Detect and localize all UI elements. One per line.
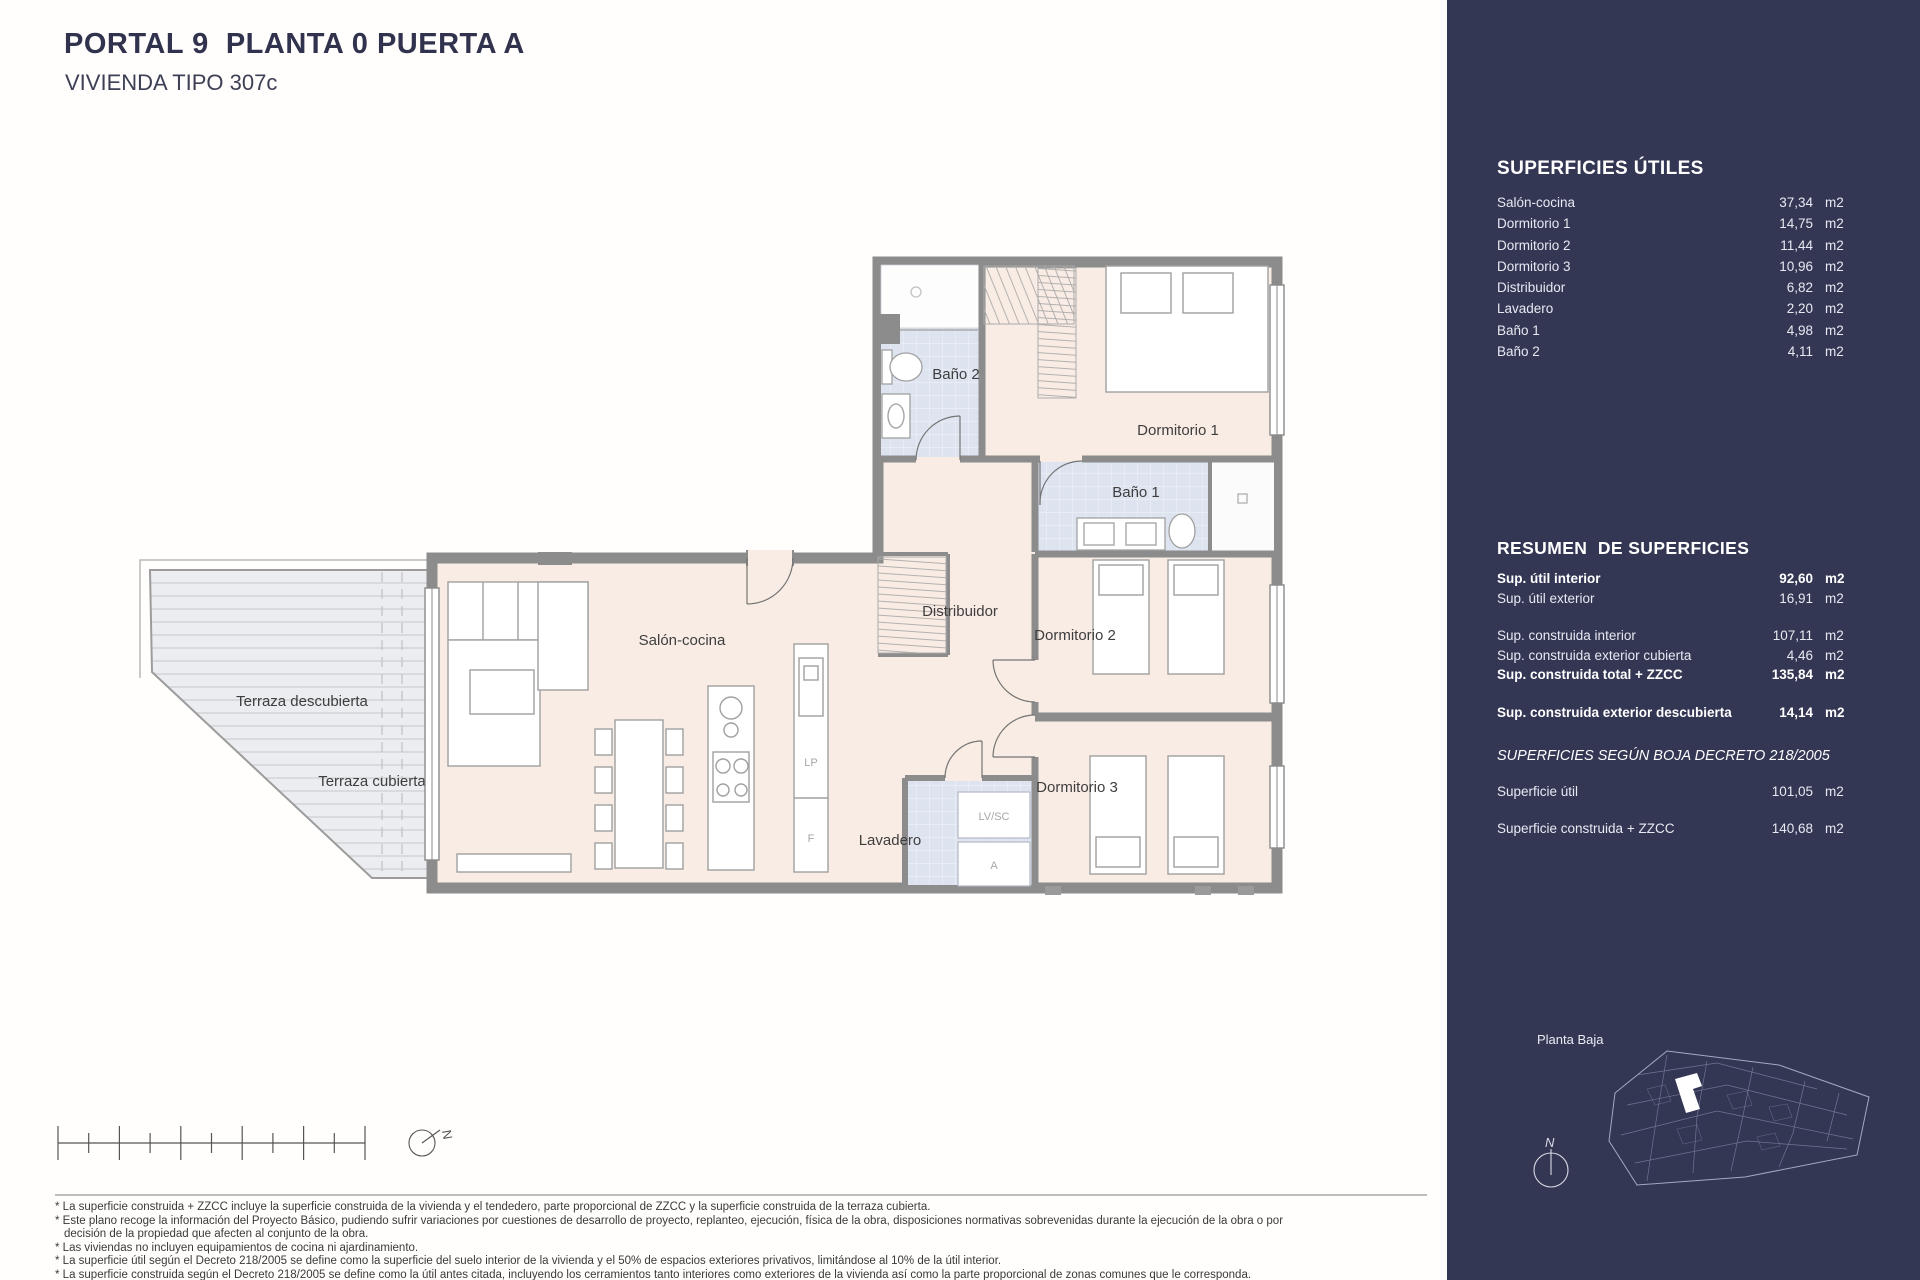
footnote: * Las viviendas no incluyen equipamiento… <box>55 1242 1310 1256</box>
banyo2-label: Baño 2 <box>932 366 980 383</box>
resumen-row: Sup. útil interior92,60m2 <box>1497 571 1859 591</box>
plan-sheet: PORTAL 9 PLANTA 0 PUERTA A VIVIENDA TIPO… <box>0 0 1920 1280</box>
a-label: A <box>990 860 998 872</box>
utiles-row: Lavadero2,20m2 <box>1497 301 1859 322</box>
utiles-row: Dormitorio 114,75m2 <box>1497 216 1859 237</box>
boja-heading: SUPERFICIES SEGÚN BOJA DECRETO 218/2005 <box>1497 748 1859 764</box>
utiles-row: Distribuidor6,82m2 <box>1497 280 1859 301</box>
dormitorio2-label: Dormitorio 2 <box>1034 627 1116 644</box>
page-subtitle: VIVIENDA TIPO 307c <box>65 70 277 96</box>
sidebar: SUPERFICIES ÚTILES Salón-cocina37,34m2 D… <box>1447 0 1920 1280</box>
resumen-section: RESUMEN DE SUPERFICIES Sup. útil interio… <box>1497 538 1859 725</box>
banyo1-label: Baño 1 <box>1112 484 1160 501</box>
dining-table <box>615 720 663 868</box>
wall-tab <box>1195 886 1211 895</box>
distribuidor-label: Distribuidor <box>922 603 998 620</box>
dormitorio1-label: Dormitorio 1 <box>1137 422 1219 439</box>
coffee-table <box>470 670 534 714</box>
site-outline <box>1609 1051 1869 1185</box>
utiles-row: Baño 14,98m2 <box>1497 323 1859 344</box>
utiles-row: Salón-cocina37,34m2 <box>1497 195 1859 216</box>
footnote: * La superficie útil según el Decreto 21… <box>55 1255 1310 1269</box>
footnote: * Este plano recoge la información del P… <box>55 1215 1310 1242</box>
sideboard <box>457 854 571 872</box>
terraza-descubierta-label: Terraza descubierta <box>236 693 368 710</box>
kitchen-island <box>708 686 754 870</box>
site-minimap: N <box>1517 1045 1887 1210</box>
lavadero-label: Lavadero <box>859 832 922 849</box>
boja-row: Superficie construida + ZZCC140,68m2 <box>1497 821 1859 858</box>
scale-bar: N <box>50 1118 460 1170</box>
dorm1-furniture <box>1106 266 1268 392</box>
resumen-row: Sup. útil exterior16,91m2 <box>1497 591 1859 611</box>
wall-pillar-2 <box>538 552 572 565</box>
dormitorio3-label: Dormitorio 3 <box>1036 779 1118 796</box>
lvsc-label: LV/SC <box>979 811 1010 823</box>
terraza-cubierta-label: Terraza cubierta <box>318 773 426 790</box>
f-label: F <box>808 833 815 845</box>
highlighted-unit <box>1675 1073 1702 1113</box>
footnotes: * La superficie construida + ZZCC incluy… <box>55 1201 1310 1280</box>
resumen-heading: RESUMEN DE SUPERFICIES <box>1497 538 1859 559</box>
resumen-row: Sup. construida total + ZZCC135,84m2 <box>1497 667 1859 687</box>
footnote: * La superficie construida + ZZCC incluy… <box>55 1201 1310 1215</box>
superficies-utiles-section: SUPERFICIES ÚTILES Salón-cocina37,34m2 D… <box>1497 158 1859 365</box>
floor-plan: Terraza descubierta Terraza cubierta <box>110 200 1330 930</box>
page-title: PORTAL 9 PLANTA 0 PUERTA A <box>64 28 525 61</box>
compass-n: N <box>1545 1135 1555 1150</box>
compass: N <box>1534 1135 1568 1187</box>
utiles-row: Baño 24,11m2 <box>1497 344 1859 365</box>
footer-divider <box>55 1194 1427 1196</box>
lp-label: LP <box>804 757 817 769</box>
wall-pillar <box>874 314 900 344</box>
boja-row: Superficie útil101,05m2 <box>1497 784 1859 821</box>
utiles-row: Dormitorio 310,96m2 <box>1497 259 1859 280</box>
banyo1-annex <box>1210 462 1274 551</box>
footnote: * La superficie construida según el Decr… <box>55 1269 1310 1280</box>
boja-section: SUPERFICIES SEGÚN BOJA DECRETO 218/2005 … <box>1497 748 1859 858</box>
terrace: Terraza descubierta Terraza cubierta <box>140 560 432 878</box>
north-arrow: N <box>409 1129 456 1156</box>
salon-cocina-label: Salón-cocina <box>639 632 726 649</box>
utiles-heading: SUPERFICIES ÚTILES <box>1497 158 1859 180</box>
resumen-row: Sup. construida exterior descubierta14,1… <box>1497 705 1859 725</box>
wall-tab <box>1238 886 1254 895</box>
entry-opening <box>747 550 793 566</box>
wall-tab <box>1045 886 1061 895</box>
resumen-row: Sup. construida exterior cubierta4,46m2 <box>1497 648 1859 668</box>
resumen-row: Sup. construida interior107,11m2 <box>1497 628 1859 648</box>
utiles-row: Dormitorio 211,44m2 <box>1497 238 1859 259</box>
north-letter: N <box>439 1129 455 1141</box>
